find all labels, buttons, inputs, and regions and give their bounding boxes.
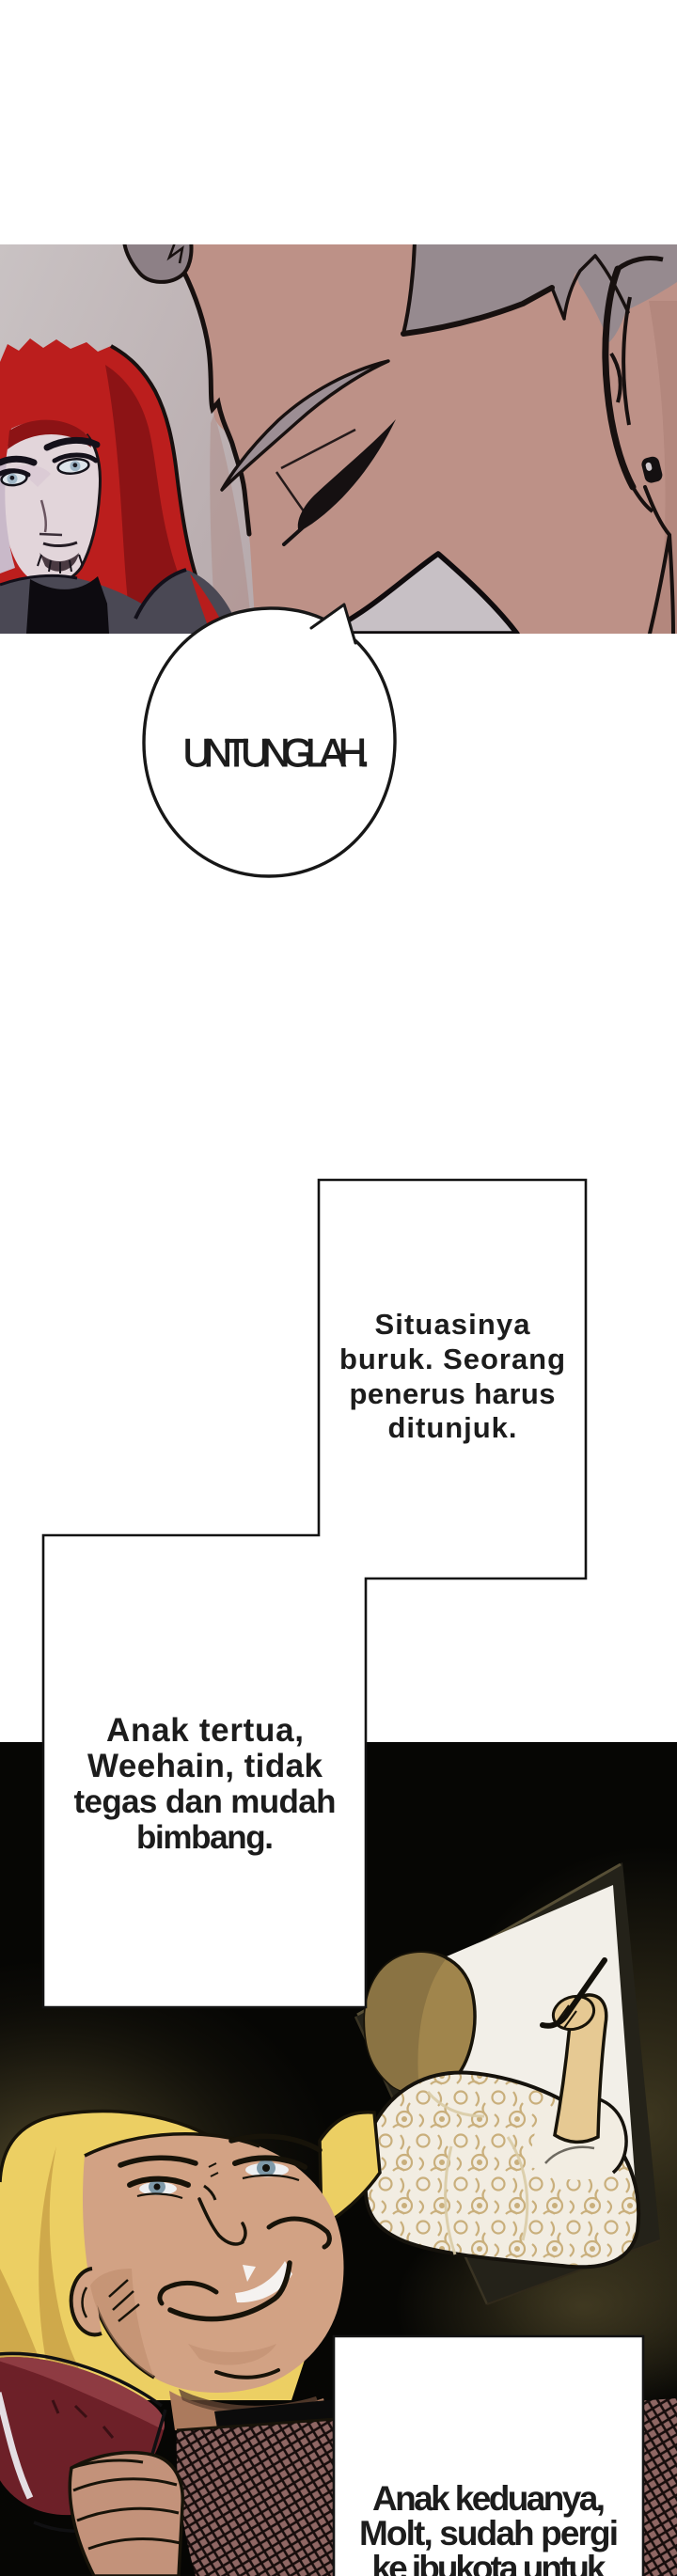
svg-text:Anak tertua,: Anak tertua, <box>106 1712 304 1749</box>
svg-text:Situasinya: Situasinya <box>375 1308 531 1341</box>
svg-text:bimbang.: bimbang. <box>136 1819 274 1856</box>
svg-text:ditunjuk.: ditunjuk. <box>388 1411 517 1444</box>
svg-text:penerus harus: penerus harus <box>350 1377 556 1410</box>
svg-text:Anak keduanya,: Anak keduanya, <box>372 2479 606 2518</box>
svg-text:ke ibukota untuk: ke ibukota untuk <box>372 2549 606 2576</box>
svg-text:buruk. Seorang: buruk. Seorang <box>339 1343 565 1375</box>
svg-text:tegas dan mudah: tegas dan mudah <box>74 1783 337 1820</box>
svg-text:Weehain, tidak: Weehain, tidak <box>87 1748 323 1784</box>
svg-text:UNTUNGLAH.: UNTUNGLAH. <box>183 730 370 775</box>
svg-text:Molt, sudah pergi: Molt, sudah pergi <box>359 2514 619 2552</box>
